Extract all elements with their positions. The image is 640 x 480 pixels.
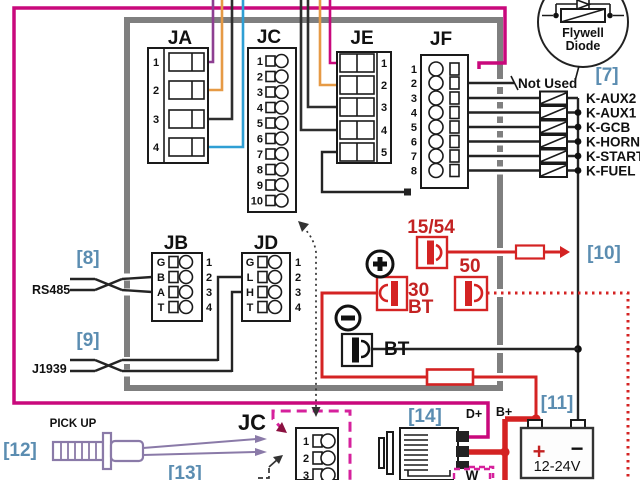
jd-pin-number: 1 [295, 257, 301, 269]
jb-pin-number: 4 [206, 302, 213, 314]
ja-pin-number: 4 [153, 142, 160, 154]
jc-dotted-callout [303, 227, 316, 408]
j1939-label: J1939 [32, 362, 67, 376]
je-pin-number: 2 [381, 80, 387, 92]
connector-je: 1 2 3 4 5 JE [337, 28, 391, 163]
relay-coil-symbols [540, 92, 567, 178]
jd-pin-letter: H [246, 287, 254, 299]
connector-jc-top-label: JC [257, 27, 282, 48]
jf-pin-number: 7 [411, 151, 417, 163]
jf-pin-number: 8 [411, 166, 417, 178]
bt-negative-label: BT [384, 339, 410, 360]
main-fuse [427, 370, 473, 385]
key-50-label: 50 [459, 256, 480, 277]
jd-pin-letter: L [247, 272, 254, 284]
relay-label: K-AUX1 [586, 106, 637, 121]
jd-pin-letter: G [246, 257, 255, 269]
connector-jc-bottom: 1 2 3 JC [238, 410, 338, 480]
jc-pin-number: 10 [251, 196, 263, 208]
jb-pin-letter: G [157, 257, 166, 269]
jb-pin-number: 1 [206, 257, 212, 269]
d-plus-label: D+ [466, 407, 482, 421]
connector-jc-bottom-label: JC [238, 410, 266, 435]
jc-bottom-pin-number: 2 [303, 453, 309, 465]
terminal-30-bt [377, 277, 407, 310]
relay-label: K-START [586, 149, 640, 164]
je2-orange-wire [320, 0, 337, 85]
callout-8: [8] [76, 248, 99, 269]
key-1554-arrow-icon [560, 246, 570, 258]
pickup-arrow-icon [255, 435, 267, 443]
jf-pin-number: 6 [411, 137, 417, 149]
callout-14: [14] [408, 406, 442, 427]
ja-pin-number: 1 [153, 57, 159, 69]
pickup-wires [143, 439, 256, 455]
terminal-1554 [417, 237, 447, 268]
je-pin-number: 5 [381, 147, 387, 159]
je5-wire-terminal [404, 189, 411, 196]
connector-jd-label: JD [254, 233, 278, 254]
pickup-arrow-icon [255, 448, 267, 456]
connector-ja-label: JA [168, 28, 193, 49]
jf-pin-number: 5 [411, 122, 417, 134]
jf-pin-number: 4 [411, 108, 418, 120]
ja2-orange-wire [208, 0, 222, 90]
connector-jf-label: JF [430, 29, 452, 50]
key-1554-fuse [516, 246, 544, 259]
not-used-label: Not Used [518, 76, 577, 91]
callout-9: [9] [76, 330, 99, 351]
minus-circle-icon [336, 306, 360, 330]
jf-pin-number: 1 [411, 64, 417, 76]
jc-bottom-pin-number: 3 [303, 470, 309, 480]
rs485-twisted-pair [70, 277, 152, 292]
alternator-pulley [379, 438, 384, 468]
jc-pin-number: 9 [257, 180, 263, 192]
connector-jd: G L H T 1 2 3 4 JD [242, 233, 302, 321]
w-label: W [466, 468, 479, 480]
plus-circle-icon [367, 251, 393, 277]
jf-pin-number: 2 [411, 78, 417, 90]
jf-pin-number: 3 [411, 93, 417, 105]
relay-label: K-FUEL [586, 164, 636, 179]
relay-label: K-GCB [586, 120, 630, 135]
jd-pin-number: 2 [295, 272, 301, 284]
ja-pin-number: 3 [153, 114, 159, 126]
jb-pin-letter: T [158, 302, 165, 314]
jc-bottom-pin-number: 1 [303, 436, 309, 448]
battery-minus-sign: − [571, 436, 584, 461]
connector-jc-top: 1 2 3 4 5 6 7 8 9 10 JC [248, 27, 296, 212]
generator-controller-wiring-diagram: 1 2 3 4 JA 1 2 3 4 5 6 7 8 9 10 JC [0, 0, 640, 480]
batt-30-bt-label: BT [408, 297, 434, 318]
pickup-label: PICK UP [50, 418, 97, 430]
jd-pin-number: 3 [295, 287, 301, 299]
alternator-junction-dot [500, 447, 509, 456]
d-plus-terminal [456, 431, 469, 442]
callout-11: [11] [541, 393, 574, 414]
callout-12: [12] [3, 440, 37, 461]
flywell-label-line1: Flywell [562, 26, 604, 40]
jb-pin-letter: B [157, 272, 165, 284]
je-pin-number: 1 [381, 58, 387, 70]
terminal-bt-negative [342, 334, 372, 366]
dotted-arrow-up-icon [298, 221, 309, 232]
rs485-label: RS485 [32, 283, 70, 297]
callout-13: [13] [168, 463, 202, 480]
je3-black-wire [308, 0, 337, 107]
b-plus-terminal [456, 446, 469, 457]
jc-pin-number: 3 [257, 87, 263, 99]
jc-pin-number: 7 [257, 149, 263, 161]
ja-pin-number: 2 [153, 85, 159, 97]
wiring-diagram-page: 1 2 3 4 JA 1 2 3 4 5 6 7 8 9 10 JC [0, 0, 640, 480]
jc-pin-number: 8 [257, 165, 263, 177]
flywell-label-line2: Diode [566, 39, 601, 53]
callout-10: [10] [587, 243, 621, 264]
jc-pin-number: 6 [257, 134, 263, 146]
battery-voltage-label: 12-24V [534, 459, 581, 475]
connector-jb: G B A T 1 2 3 4 JB [152, 233, 213, 321]
jc-pin-number: 1 [257, 56, 263, 68]
key-1554-label: 15/54 [407, 217, 455, 238]
jd-pin-number: 4 [295, 302, 302, 314]
relay-label: K-AUX2 [586, 91, 636, 106]
jc-pin-number: 5 [257, 118, 263, 130]
connector-jb-label: JB [164, 233, 188, 254]
connector-je-label: JE [350, 28, 373, 49]
connector-jf: 1 2 3 4 5 6 7 8 JF [411, 29, 468, 188]
terminal-50 [455, 277, 487, 310]
callout-7: [7] [595, 65, 618, 86]
jb-pin-number: 2 [206, 272, 212, 284]
jb-pin-letter: A [157, 287, 165, 299]
pickup-sensor [53, 433, 267, 469]
jc-pin-number: 2 [257, 72, 263, 84]
b-plus-label: B+ [496, 405, 512, 419]
je-pin-number: 4 [381, 125, 388, 137]
relay-label: K-HORN [586, 135, 640, 150]
jb-pin-number: 3 [206, 287, 212, 299]
je-pin-number: 3 [381, 102, 387, 114]
jd-pin-letter: T [247, 302, 254, 314]
connector-ja: 1 2 3 4 JA [148, 28, 208, 163]
jc-pin-number: 4 [257, 103, 264, 115]
